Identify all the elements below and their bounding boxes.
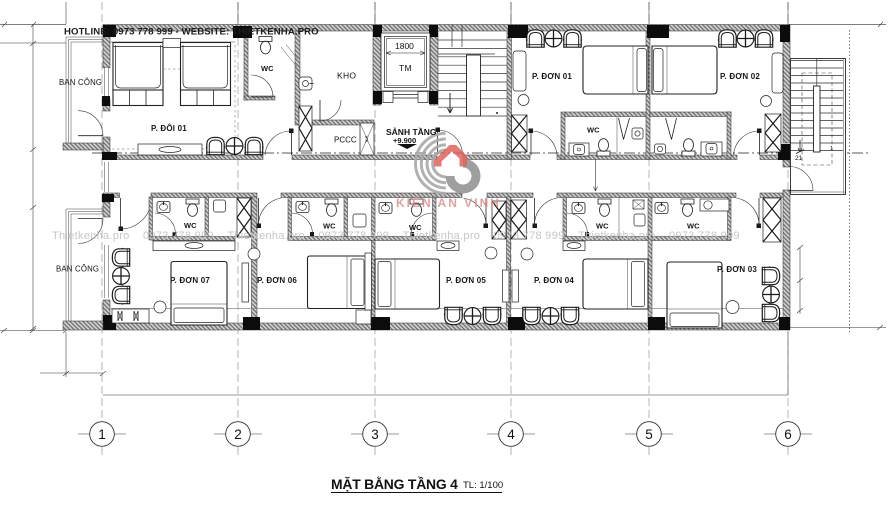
svg-text:1: 1 <box>830 146 833 152</box>
svg-text:P. ĐƠN 04: P. ĐƠN 04 <box>534 276 574 285</box>
svg-text:P. ĐƠN 07: P. ĐƠN 07 <box>170 276 210 285</box>
svg-text:BAN CÔNG: BAN CÔNG <box>56 265 99 274</box>
svg-text:1: 1 <box>98 427 106 442</box>
svg-text:4: 4 <box>507 427 515 442</box>
svg-text:PCCC: PCCC <box>334 136 357 145</box>
svg-text:3: 3 <box>371 427 379 442</box>
svg-text:+9.900: +9.900 <box>393 136 416 145</box>
svg-text:WC: WC <box>184 221 197 230</box>
svg-text:P. ĐƠN 02: P. ĐƠN 02 <box>720 72 760 81</box>
svg-text:MẶT BẰNG TẦNG 4: MẶT BẰNG TẦNG 4 <box>331 475 458 492</box>
svg-text:P. ĐƠN 01: P. ĐƠN 01 <box>532 72 572 81</box>
svg-text:WC: WC <box>596 222 609 231</box>
svg-text:P. ĐÔI 01: P. ĐÔI 01 <box>151 124 187 133</box>
svg-text:WC: WC <box>323 222 336 231</box>
svg-text:21: 21 <box>795 155 803 162</box>
svg-text:TL: 1/100: TL: 1/100 <box>463 480 503 491</box>
svg-text:WC: WC <box>261 64 274 73</box>
svg-text:1800: 1800 <box>395 41 414 51</box>
svg-text:P. ĐƠN 03: P. ĐƠN 03 <box>717 265 757 274</box>
svg-text:Thietkenha.pro 0973 778 999: Thietkenha.pro 0973 778 999 Thietkenha.p… <box>52 230 740 242</box>
svg-text:5: 5 <box>645 427 653 442</box>
svg-text:KIẾN AN VINH: KIẾN AN VINH <box>396 195 501 210</box>
svg-text:KHO: KHO <box>337 71 356 81</box>
svg-text:WC: WC <box>587 126 600 135</box>
svg-text:WC: WC <box>409 223 422 232</box>
svg-text:HOTLINE: 0973 778 999 - WEBSIT: HOTLINE: 0973 778 999 - WEBSITE: THIETKE… <box>64 27 319 38</box>
svg-text:BAN CÔNG: BAN CÔNG <box>59 78 102 87</box>
svg-text:P. ĐƠN 05: P. ĐƠN 05 <box>446 276 486 285</box>
svg-text:2: 2 <box>234 427 242 442</box>
svg-text:P. ĐƠN 06: P. ĐƠN 06 <box>257 276 297 285</box>
svg-text:TM: TM <box>399 63 412 73</box>
svg-text:V.A: V.A <box>364 136 369 143</box>
svg-text:6: 6 <box>784 427 792 442</box>
svg-text:WC: WC <box>687 222 700 231</box>
